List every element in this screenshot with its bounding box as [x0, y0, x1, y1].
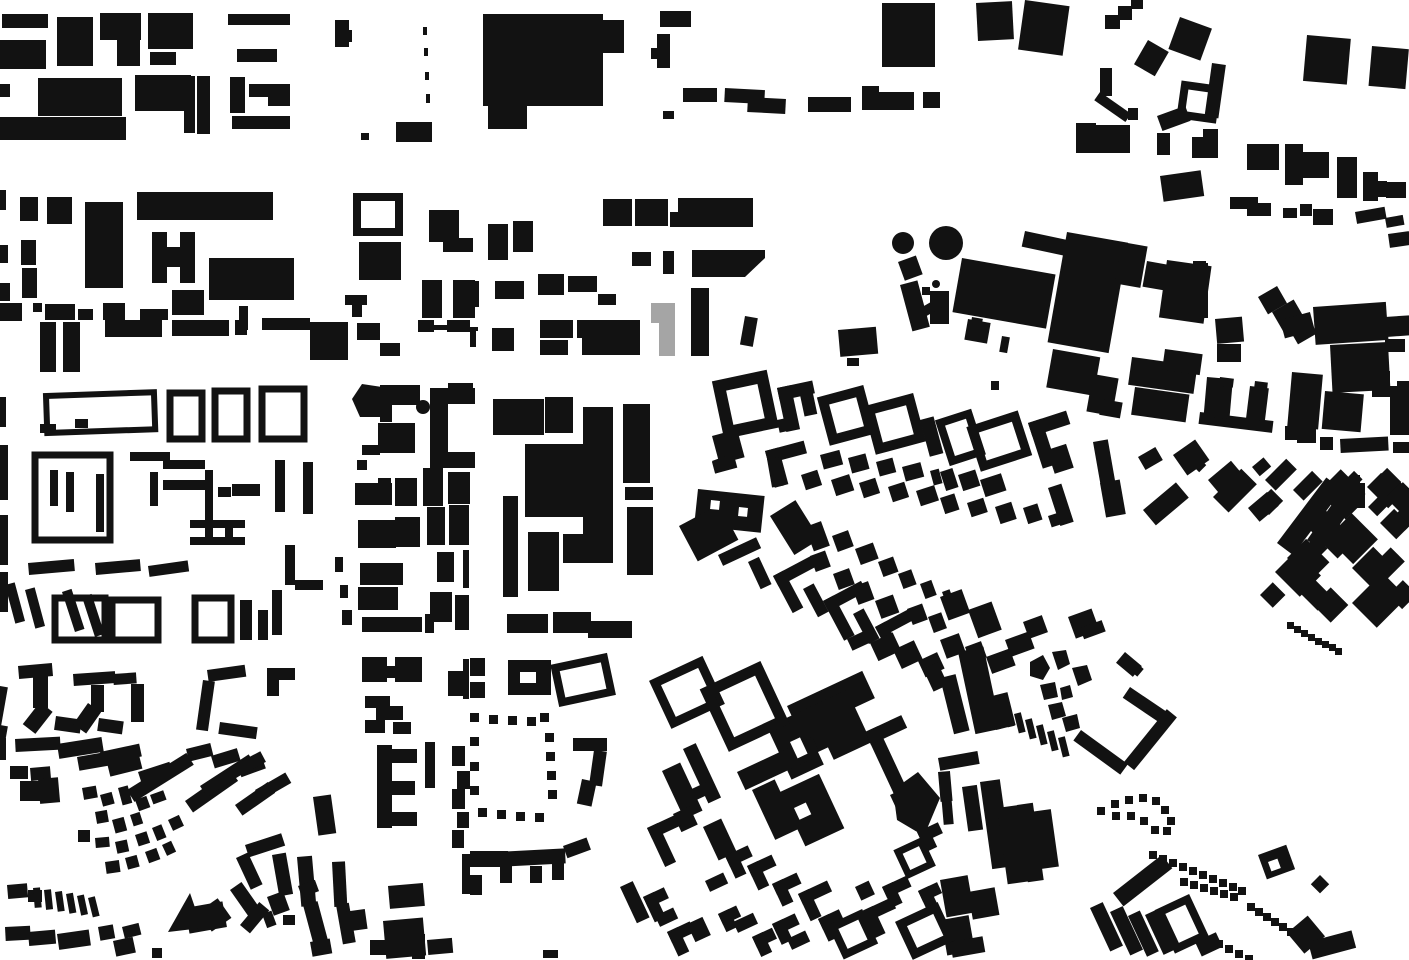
- building: [425, 742, 435, 788]
- building: [1247, 203, 1271, 216]
- dot-structure: [1190, 881, 1198, 889]
- building: [310, 322, 348, 360]
- building: [980, 473, 1006, 497]
- building: [0, 572, 8, 612]
- building: [235, 320, 247, 335]
- building: [855, 881, 875, 901]
- dot-structure: [1199, 871, 1207, 879]
- courtyard-building: [823, 391, 870, 439]
- building: [378, 478, 391, 505]
- building: [85, 202, 123, 288]
- building: [452, 830, 464, 848]
- building: [443, 238, 473, 252]
- building: [940, 493, 960, 514]
- building: [232, 484, 260, 496]
- building: [625, 487, 653, 500]
- dot-structure: [1111, 800, 1119, 808]
- building: [73, 671, 116, 686]
- building: [168, 815, 184, 831]
- building: [660, 11, 691, 27]
- courtyard-building: [170, 393, 202, 439]
- building: [1386, 182, 1406, 198]
- building: [1048, 702, 1066, 720]
- dot-structure: [516, 812, 525, 821]
- building: [847, 358, 859, 366]
- building: [148, 13, 193, 49]
- building: [0, 40, 46, 69]
- building: [7, 883, 28, 899]
- building: [495, 281, 524, 299]
- building: [218, 722, 257, 739]
- building: [447, 320, 470, 332]
- building: [344, 30, 352, 42]
- building: [362, 445, 380, 455]
- building: [1388, 231, 1409, 248]
- building: [0, 283, 10, 301]
- building: [130, 812, 143, 827]
- building: [335, 557, 343, 572]
- building: [1303, 152, 1329, 178]
- building: [225, 528, 233, 537]
- building: [508, 683, 551, 695]
- courtyard-building: [869, 399, 920, 449]
- building: [991, 381, 999, 390]
- building: [361, 133, 369, 140]
- building: [1076, 123, 1096, 153]
- building: [663, 111, 674, 119]
- building: [163, 460, 205, 469]
- building: [832, 530, 854, 552]
- building: [0, 515, 8, 565]
- building: [577, 779, 597, 807]
- building: [423, 468, 443, 506]
- building: [488, 224, 508, 260]
- building: [113, 937, 136, 957]
- building: [623, 404, 650, 483]
- building: [1018, 0, 1070, 56]
- building: [342, 610, 352, 625]
- building: [455, 595, 469, 630]
- building: [473, 281, 479, 307]
- building: [75, 419, 88, 428]
- building: [1372, 371, 1390, 397]
- dot-structure: [1189, 867, 1197, 875]
- figure-ground-map[interactable]: [0, 0, 1409, 960]
- building: [1094, 92, 1131, 122]
- building: [165, 247, 182, 267]
- building: [1219, 377, 1234, 388]
- building: [740, 316, 758, 347]
- building: [412, 934, 425, 959]
- building: [228, 14, 290, 25]
- courtyard-building: [833, 914, 873, 954]
- building: [1036, 724, 1048, 745]
- dot-structure: [1229, 883, 1237, 891]
- building: [0, 738, 6, 760]
- dot-structure: [470, 786, 479, 795]
- dot-structure: [1315, 638, 1322, 645]
- building: [1123, 687, 1170, 725]
- building: [930, 469, 943, 486]
- building: [801, 470, 822, 490]
- building: [492, 328, 514, 351]
- building: [568, 276, 597, 292]
- building: [190, 520, 245, 528]
- courtyard-building: [972, 416, 1027, 466]
- building: [1203, 129, 1218, 158]
- building: [117, 38, 140, 66]
- building: [800, 392, 817, 416]
- building: [1099, 399, 1122, 418]
- dot-structure: [1247, 903, 1255, 911]
- building: [232, 116, 290, 129]
- courtyard-building: [901, 908, 949, 954]
- courtyard-building: [357, 197, 399, 232]
- dot-structure: [548, 790, 557, 799]
- building: [378, 423, 415, 453]
- dot-structure: [1179, 863, 1187, 871]
- dot-structure: [1294, 626, 1301, 633]
- building: [448, 472, 470, 504]
- building: [426, 94, 430, 103]
- dot-structure: [1209, 875, 1217, 883]
- courtyard-hole: [738, 507, 748, 517]
- building: [0, 303, 22, 321]
- building: [28, 559, 75, 575]
- building: [632, 252, 651, 266]
- map-viewport: [0, 0, 1409, 960]
- building: [683, 88, 717, 102]
- building: [470, 875, 482, 895]
- building: [40, 322, 56, 372]
- dot-structure: [1287, 928, 1295, 936]
- building: [21, 240, 36, 265]
- courtyard-hole: [710, 500, 720, 510]
- building: [968, 601, 1002, 638]
- courtyard-building: [112, 600, 158, 640]
- dot-structure: [535, 813, 544, 822]
- building: [0, 245, 8, 263]
- dot-structure: [1271, 918, 1279, 926]
- dot-structure: [1200, 884, 1208, 892]
- building: [57, 930, 91, 950]
- building: [343, 909, 368, 932]
- building: [1062, 714, 1080, 732]
- building: [45, 304, 75, 320]
- building: [780, 774, 844, 847]
- building: [525, 444, 583, 517]
- building: [96, 474, 104, 532]
- building: [627, 507, 653, 575]
- dot-structure: [1167, 817, 1175, 825]
- courtyard-building: [555, 658, 611, 703]
- building: [88, 896, 100, 917]
- dot-structure: [1329, 644, 1336, 651]
- building: [275, 460, 285, 512]
- building: [370, 940, 388, 955]
- courtyard-building: [719, 377, 772, 432]
- building: [848, 453, 870, 473]
- building: [838, 327, 878, 357]
- building: [184, 76, 195, 133]
- building: [1285, 426, 1298, 440]
- building: [172, 290, 204, 315]
- building: [1052, 650, 1070, 670]
- building: [103, 303, 125, 320]
- building: [483, 14, 603, 106]
- building: [1377, 181, 1387, 197]
- building: [1363, 172, 1378, 201]
- dot-structure: [489, 715, 498, 724]
- dot-structure: [1139, 794, 1147, 802]
- building: [553, 612, 591, 633]
- building: [507, 614, 548, 633]
- building: [1047, 730, 1059, 751]
- building: [95, 559, 141, 575]
- building: [150, 52, 176, 65]
- building: [249, 84, 290, 97]
- courtyard-building: [46, 392, 155, 433]
- dot-structure: [1097, 807, 1105, 815]
- building: [1047, 444, 1074, 474]
- building: [388, 883, 425, 909]
- building: [396, 122, 432, 142]
- building: [44, 889, 53, 910]
- building: [1252, 457, 1271, 476]
- building: [855, 543, 879, 565]
- dot-structure: [478, 808, 487, 817]
- building: [268, 96, 290, 106]
- building: [1303, 35, 1351, 85]
- highlighted-building: [651, 303, 675, 323]
- building: [577, 320, 640, 338]
- dot-structure: [1169, 859, 1177, 867]
- building: [1283, 208, 1297, 218]
- building: [150, 472, 158, 506]
- building: [938, 751, 980, 771]
- building: [787, 931, 810, 950]
- building: [424, 48, 428, 56]
- dot-structure: [1112, 812, 1120, 820]
- building: [359, 242, 401, 280]
- building: [423, 27, 427, 35]
- building: [1385, 215, 1404, 228]
- building: [240, 600, 252, 640]
- dot-structure: [1140, 817, 1148, 825]
- building: [130, 452, 170, 461]
- building: [876, 458, 896, 477]
- building: [967, 498, 988, 518]
- building: [5, 926, 31, 941]
- building: [1160, 170, 1204, 201]
- building: [152, 948, 162, 958]
- dot-structure: [1322, 641, 1329, 648]
- building: [1247, 144, 1279, 170]
- building: [462, 854, 470, 894]
- building: [1311, 875, 1329, 893]
- building: [976, 1, 1014, 41]
- building: [748, 557, 772, 589]
- building: [452, 746, 465, 766]
- building: [995, 502, 1017, 524]
- building: [1322, 391, 1364, 432]
- building: [393, 722, 411, 734]
- building: [105, 860, 121, 874]
- building: [449, 505, 469, 545]
- building: [357, 460, 367, 470]
- building: [1143, 482, 1189, 525]
- dot-structure: [546, 752, 555, 761]
- dot-structure: [1287, 622, 1294, 629]
- building: [879, 92, 914, 110]
- dot-structure: [1235, 950, 1243, 958]
- building: [1355, 207, 1387, 224]
- dot-structure: [1219, 879, 1227, 887]
- building: [831, 474, 854, 496]
- building: [902, 462, 924, 481]
- building: [267, 668, 279, 696]
- building: [190, 537, 245, 545]
- building: [422, 280, 442, 318]
- building: [437, 552, 454, 582]
- building: [395, 478, 417, 506]
- courtyard-building: [262, 389, 304, 439]
- building: [528, 532, 559, 591]
- building: [1265, 459, 1297, 491]
- building: [430, 592, 452, 622]
- dot-structure: [1255, 908, 1263, 916]
- building: [1300, 204, 1312, 216]
- building: [457, 771, 470, 789]
- building: [197, 76, 210, 134]
- building: [1393, 442, 1409, 453]
- building: [805, 521, 830, 551]
- round-building: [929, 226, 963, 260]
- dot-structure: [1180, 878, 1188, 886]
- building: [113, 672, 137, 685]
- building: [1313, 209, 1333, 225]
- building: [237, 49, 277, 62]
- building: [635, 199, 668, 226]
- building: [552, 863, 564, 880]
- building: [205, 528, 213, 537]
- building: [66, 893, 76, 914]
- dot-structure: [1238, 887, 1246, 895]
- building: [678, 198, 753, 227]
- building: [427, 507, 445, 545]
- building: [38, 777, 60, 804]
- building: [1353, 475, 1360, 485]
- building: [453, 280, 475, 318]
- building: [687, 917, 711, 942]
- building: [360, 563, 403, 585]
- building: [1390, 386, 1409, 435]
- building: [808, 97, 851, 112]
- building: [97, 718, 124, 734]
- building: [898, 569, 917, 589]
- dot-structure: [545, 733, 554, 742]
- building: [859, 478, 880, 498]
- building: [430, 452, 475, 468]
- building: [1297, 424, 1316, 443]
- building: [100, 792, 115, 807]
- building: [152, 824, 167, 841]
- building: [1313, 302, 1388, 345]
- building: [209, 258, 294, 300]
- building: [352, 303, 362, 317]
- building: [0, 190, 6, 210]
- building: [392, 781, 415, 795]
- building: [1350, 483, 1365, 508]
- building: [352, 384, 382, 417]
- building: [1100, 480, 1126, 518]
- building: [0, 117, 126, 140]
- building: [272, 590, 282, 635]
- building: [255, 773, 291, 801]
- building: [358, 587, 398, 610]
- building: [377, 745, 392, 828]
- building: [1058, 736, 1070, 757]
- building: [135, 831, 150, 846]
- building: [878, 557, 899, 578]
- building: [588, 621, 632, 638]
- dot-structure: [1149, 851, 1157, 859]
- building: [112, 817, 127, 834]
- building: [620, 881, 650, 923]
- building: [747, 97, 786, 114]
- building: [125, 855, 140, 870]
- building: [172, 320, 229, 336]
- building: [357, 323, 380, 340]
- building: [0, 84, 10, 97]
- building: [1025, 718, 1037, 739]
- building: [962, 785, 983, 832]
- building: [503, 496, 518, 597]
- building: [258, 610, 268, 640]
- building: [916, 485, 939, 506]
- building: [135, 75, 191, 111]
- building: [603, 199, 632, 226]
- building: [55, 891, 65, 912]
- building: [1260, 582, 1285, 607]
- building: [1014, 712, 1026, 733]
- building: [365, 720, 385, 733]
- building: [563, 837, 591, 858]
- building: [82, 786, 98, 800]
- dot-structure: [470, 762, 479, 771]
- building: [180, 232, 195, 283]
- dot-structure: [508, 716, 517, 725]
- building: [218, 487, 231, 497]
- building: [875, 595, 899, 619]
- building: [940, 468, 959, 491]
- building: [810, 551, 831, 572]
- building: [543, 950, 558, 958]
- building: [358, 520, 396, 548]
- building: [1072, 665, 1092, 686]
- building: [452, 789, 465, 809]
- building: [470, 658, 485, 676]
- building: [1199, 263, 1208, 318]
- building: [513, 106, 527, 129]
- building: [493, 399, 544, 435]
- building: [1254, 381, 1268, 391]
- building: [1040, 682, 1058, 700]
- courtyard-building: [215, 391, 247, 439]
- building: [712, 454, 735, 473]
- building: [47, 197, 72, 224]
- building: [920, 580, 937, 599]
